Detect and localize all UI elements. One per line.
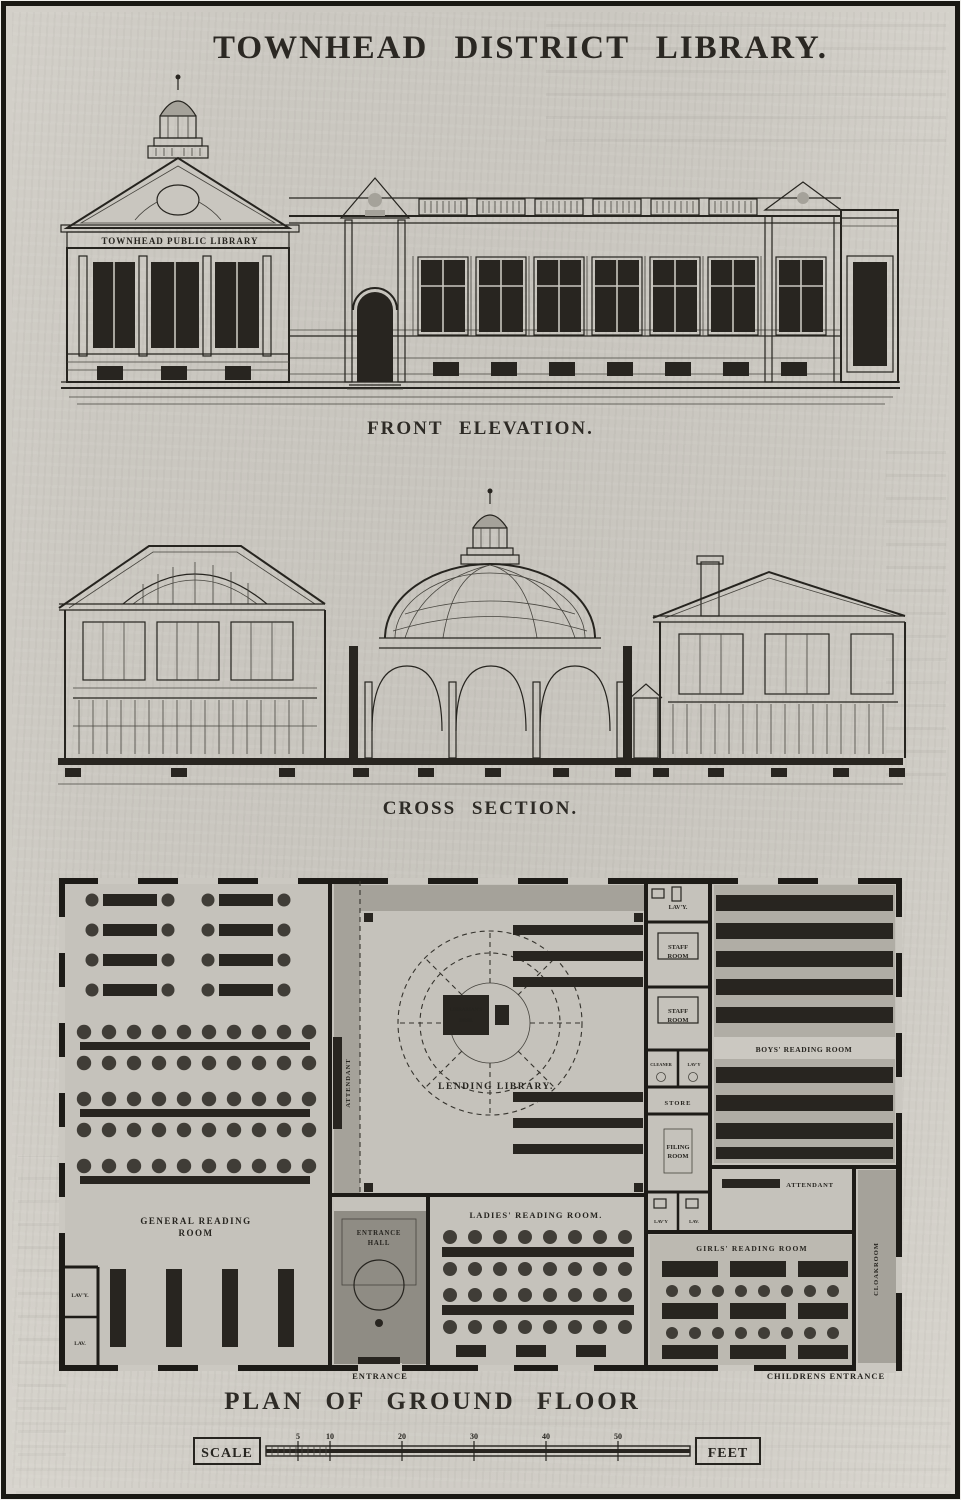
- ladies-reading-room-label: LADIES' READING ROOM.: [469, 1210, 602, 1220]
- cloakroom: CLOAKROOM: [873, 1242, 880, 1296]
- librarians-desk-label-2: DESK: [459, 1019, 473, 1024]
- store-label: STORE: [665, 1100, 692, 1107]
- elevation-ground-lines: [61, 382, 900, 404]
- entrance-hall-label-2: HALL: [368, 1240, 390, 1247]
- cloakroom-label: CLOAKROOM: [873, 1242, 880, 1296]
- general-reading-room-label-2: ROOM: [179, 1228, 214, 1238]
- section-right-panelling: [673, 704, 883, 754]
- cleaner-label: CLEANER: [650, 1062, 672, 1067]
- attendant-right-label: ATTENDANT: [786, 1182, 834, 1189]
- staff-room-1-label-1: STAFF: [668, 944, 688, 951]
- childrens-entrance-label: CHILDRENS ENTRANCE: [767, 1371, 885, 1381]
- scale-bar: SCALE 5 10 20 30 40 50 FEET: [190, 1430, 770, 1476]
- staff-room-1-label-2: ROOM: [668, 953, 689, 960]
- lavatory-low-label-2: LAV.: [689, 1219, 699, 1224]
- feet-label: FEET: [708, 1446, 749, 1461]
- attendant-left-label: ATTENDANT: [345, 1058, 352, 1107]
- pavilion-frieze-text: TOWNHEAD PUBLIC LIBRARY: [101, 236, 258, 246]
- section-dome: [349, 489, 632, 759]
- entrance-label: ENTRANCE: [352, 1371, 408, 1381]
- page-title: TOWNHEAD DISTRICT LIBRARY.: [0, 30, 961, 67]
- filing-room-label-2: ROOM: [668, 1153, 689, 1160]
- section-left-block: [59, 546, 325, 758]
- elevation-entrance-bay: [341, 178, 409, 389]
- scanned-plate-page: TOWNHEAD DISTRICT LIBRARY.: [0, 0, 961, 1500]
- scale-label: SCALE: [201, 1446, 253, 1461]
- filing-room-label-1: FILING: [666, 1144, 689, 1151]
- section-left-panelling: [79, 700, 303, 754]
- cross-section-drawing: [53, 486, 908, 792]
- scale-tick-10: 10: [326, 1432, 334, 1441]
- elevation-right-bay: [765, 182, 841, 382]
- elevation-right-pavilion: [841, 210, 898, 382]
- scale-tick-5: 5: [296, 1432, 300, 1441]
- staff-room-2-label-2: ROOM: [668, 1017, 689, 1024]
- scale-tick-30: 30: [470, 1432, 478, 1441]
- lending-library-label: LENDING LIBRARY.: [438, 1082, 554, 1092]
- front-elevation-drawing: TOWNHEAD PUBLIC LIBRARY: [53, 70, 908, 414]
- general-reading-room-label-1: GENERAL READING: [140, 1216, 251, 1226]
- scale-tick-40: 40: [542, 1432, 550, 1441]
- ground-floor-plan: GENERAL READING ROOM LAV'Y. LAV. ATTENDA…: [58, 877, 903, 1382]
- section-ground: [58, 758, 905, 784]
- elevation-left-pavilion: TOWNHEAD PUBLIC LIBRARY: [61, 75, 299, 383]
- entrance-hall-label-1: ENTRANCE: [357, 1230, 402, 1237]
- girls-reading-room-label: GIRLS' READING ROOM: [696, 1244, 808, 1253]
- sw-lavatory-label-1: LAV'Y.: [71, 1293, 89, 1299]
- librarians-desk-label-1: LIBRARIAN'S: [450, 1008, 483, 1013]
- staff-room-2-label-1: STAFF: [668, 1008, 688, 1015]
- section-right-block: [630, 556, 905, 758]
- boys-reading-room-label: BOYS' READING ROOM: [756, 1045, 853, 1054]
- ground-floor-caption: PLAN OF GROUND FLOOR: [0, 1388, 913, 1416]
- front-elevation-caption: FRONT ELEVATION.: [0, 418, 961, 440]
- lavatory-low-label-1: LAV'Y: [654, 1219, 668, 1224]
- lavatory-mid-label: LAV'Y: [687, 1062, 701, 1067]
- lavatory-top-label: LAV'Y.: [669, 905, 688, 911]
- scale-tick-20: 20: [398, 1432, 406, 1441]
- cross-section-caption: CROSS SECTION.: [0, 798, 961, 820]
- sw-lavatory-label-2: LAV.: [74, 1341, 86, 1347]
- scale-tick-50: 50: [614, 1432, 622, 1441]
